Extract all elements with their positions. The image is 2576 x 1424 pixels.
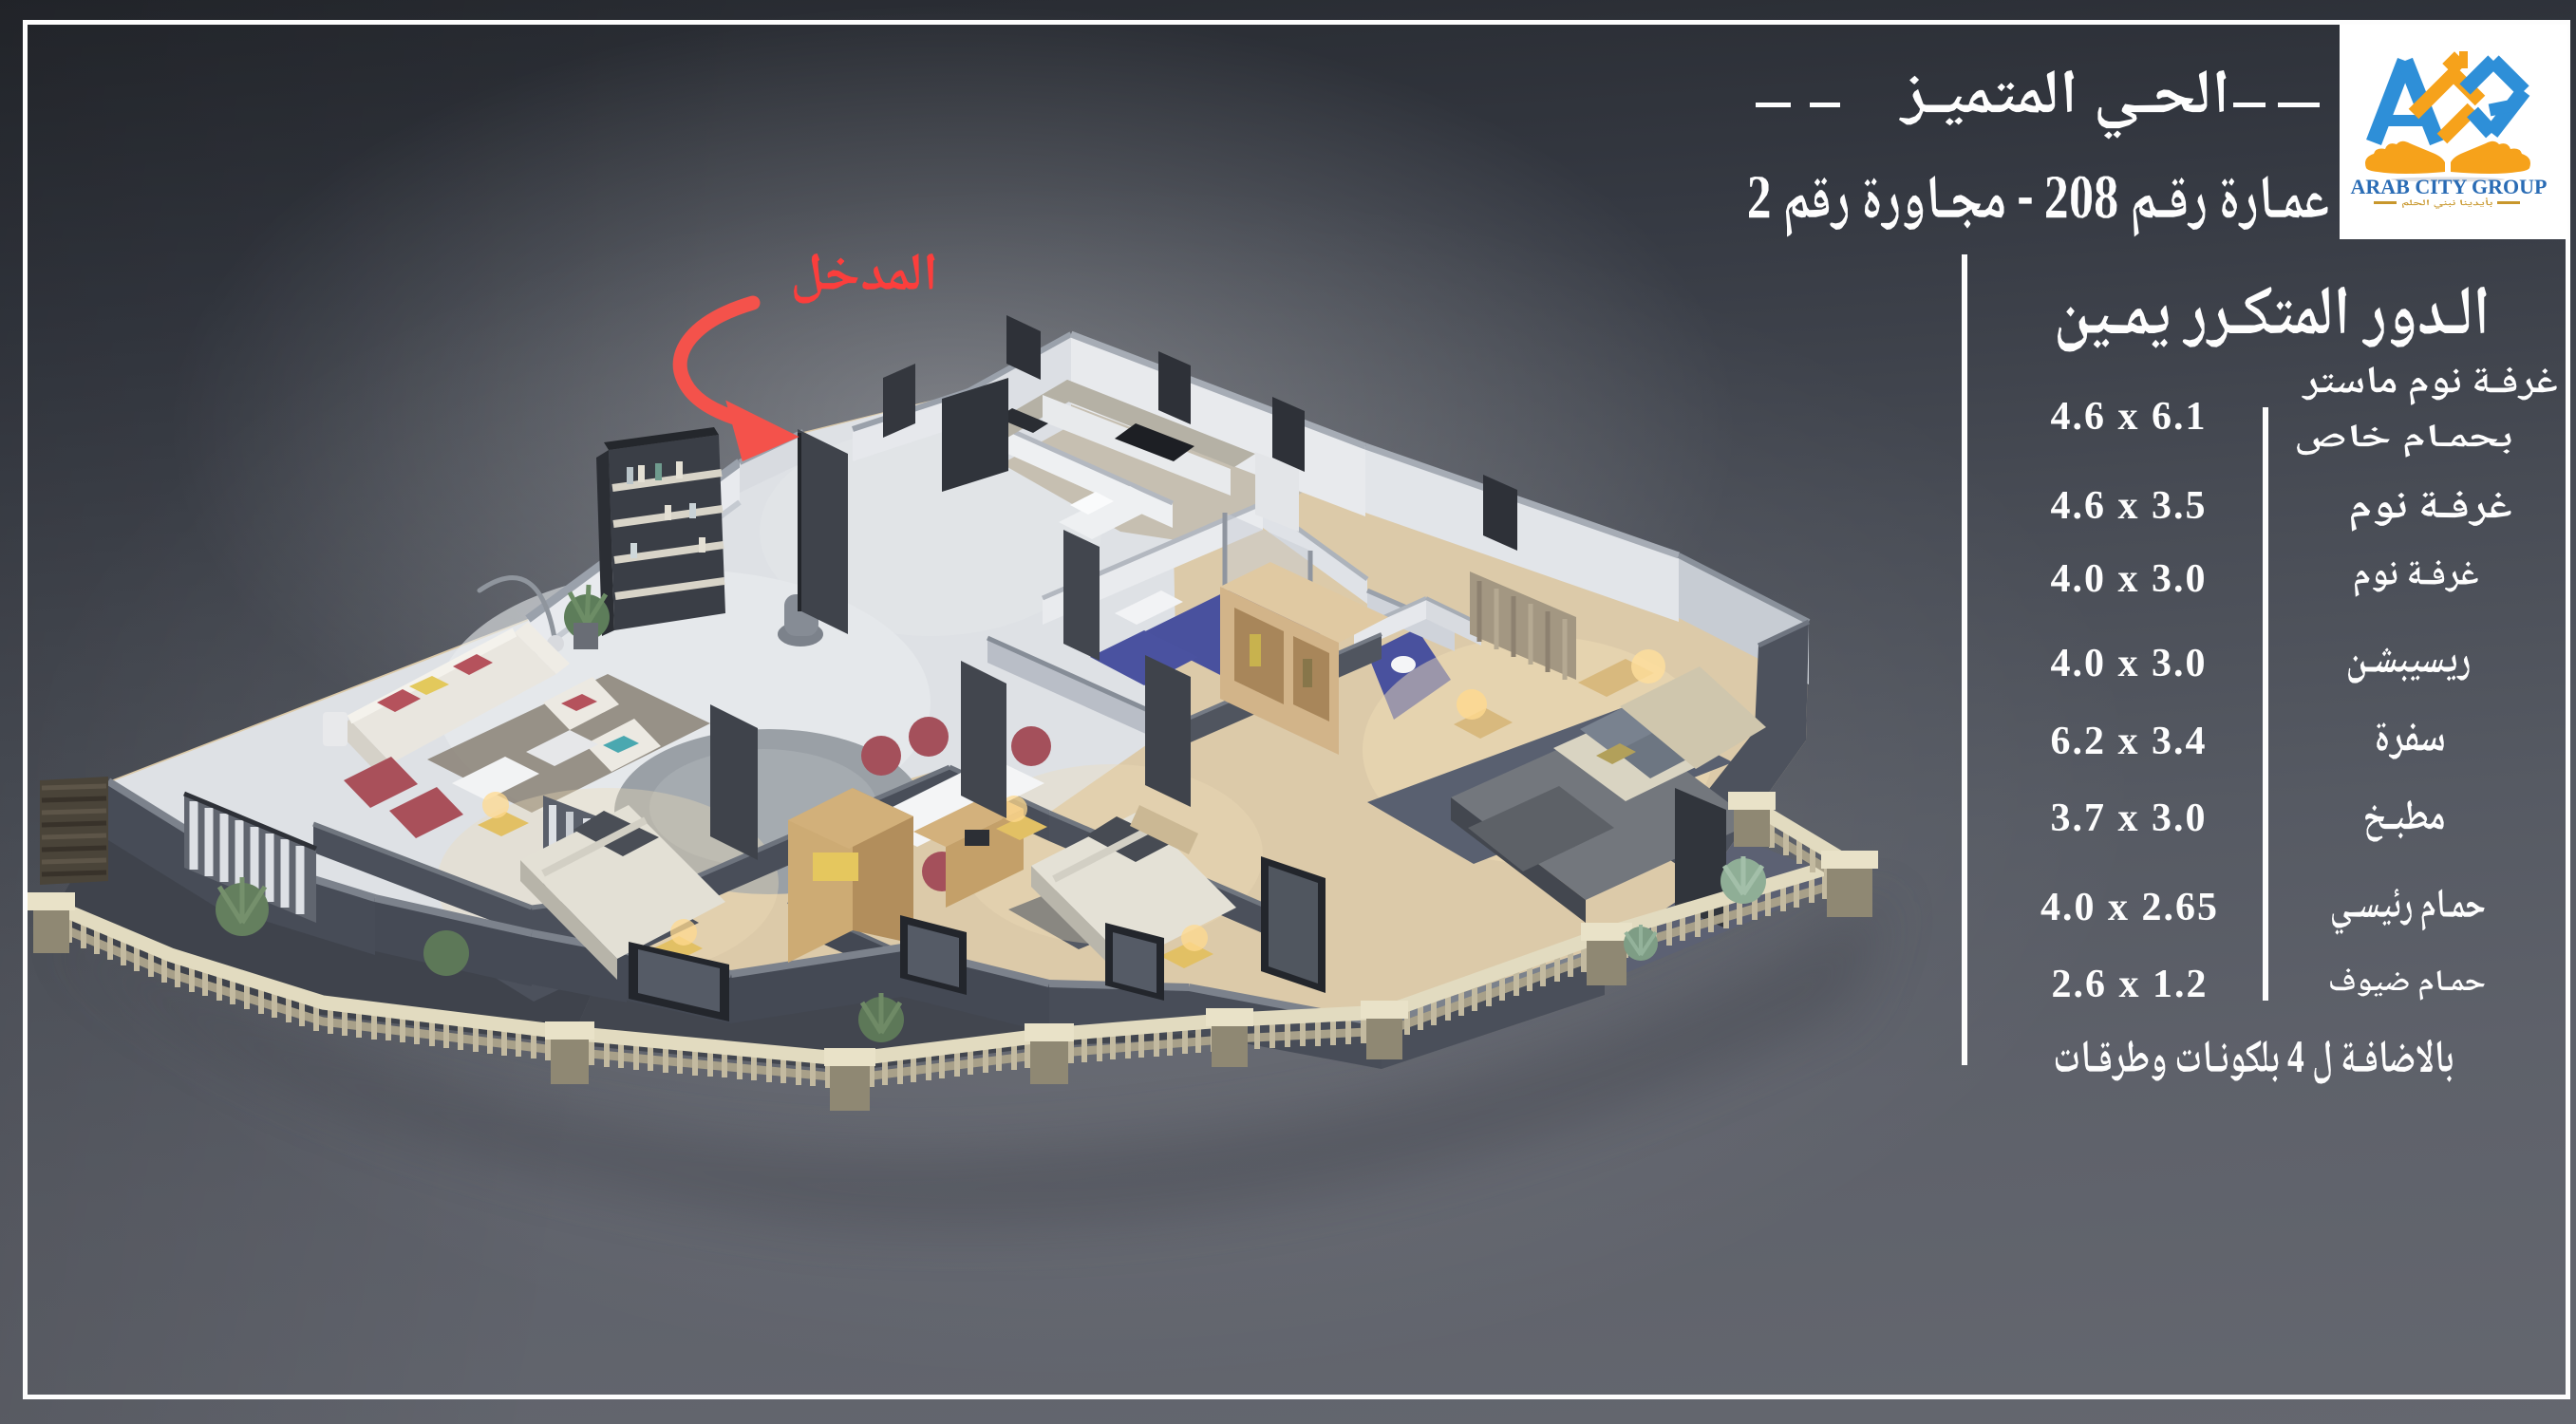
svg-text:ARAB CITY GROUP: ARAB CITY GROUP: [2351, 175, 2548, 198]
svg-text:6.2 x 3.4: 6.2 x 3.4: [2051, 720, 2208, 763]
svg-text:4.0 x 3.0: 4.0 x 3.0: [2051, 557, 2208, 601]
svg-text:4.0 x 3.0: 4.0 x 3.0: [2051, 642, 2208, 685]
svg-text:4.6 x 6.1: 4.6 x 6.1: [2051, 395, 2208, 439]
svg-text:3.7 x 3.0: 3.7 x 3.0: [2051, 796, 2208, 840]
svg-text:2.6 x 1.2: 2.6 x 1.2: [2052, 963, 2209, 1006]
svg-text:4.0 x 2.65: 4.0 x 2.65: [2040, 886, 2219, 929]
svg-text:4.6 x 3.5: 4.6 x 3.5: [2051, 484, 2208, 528]
